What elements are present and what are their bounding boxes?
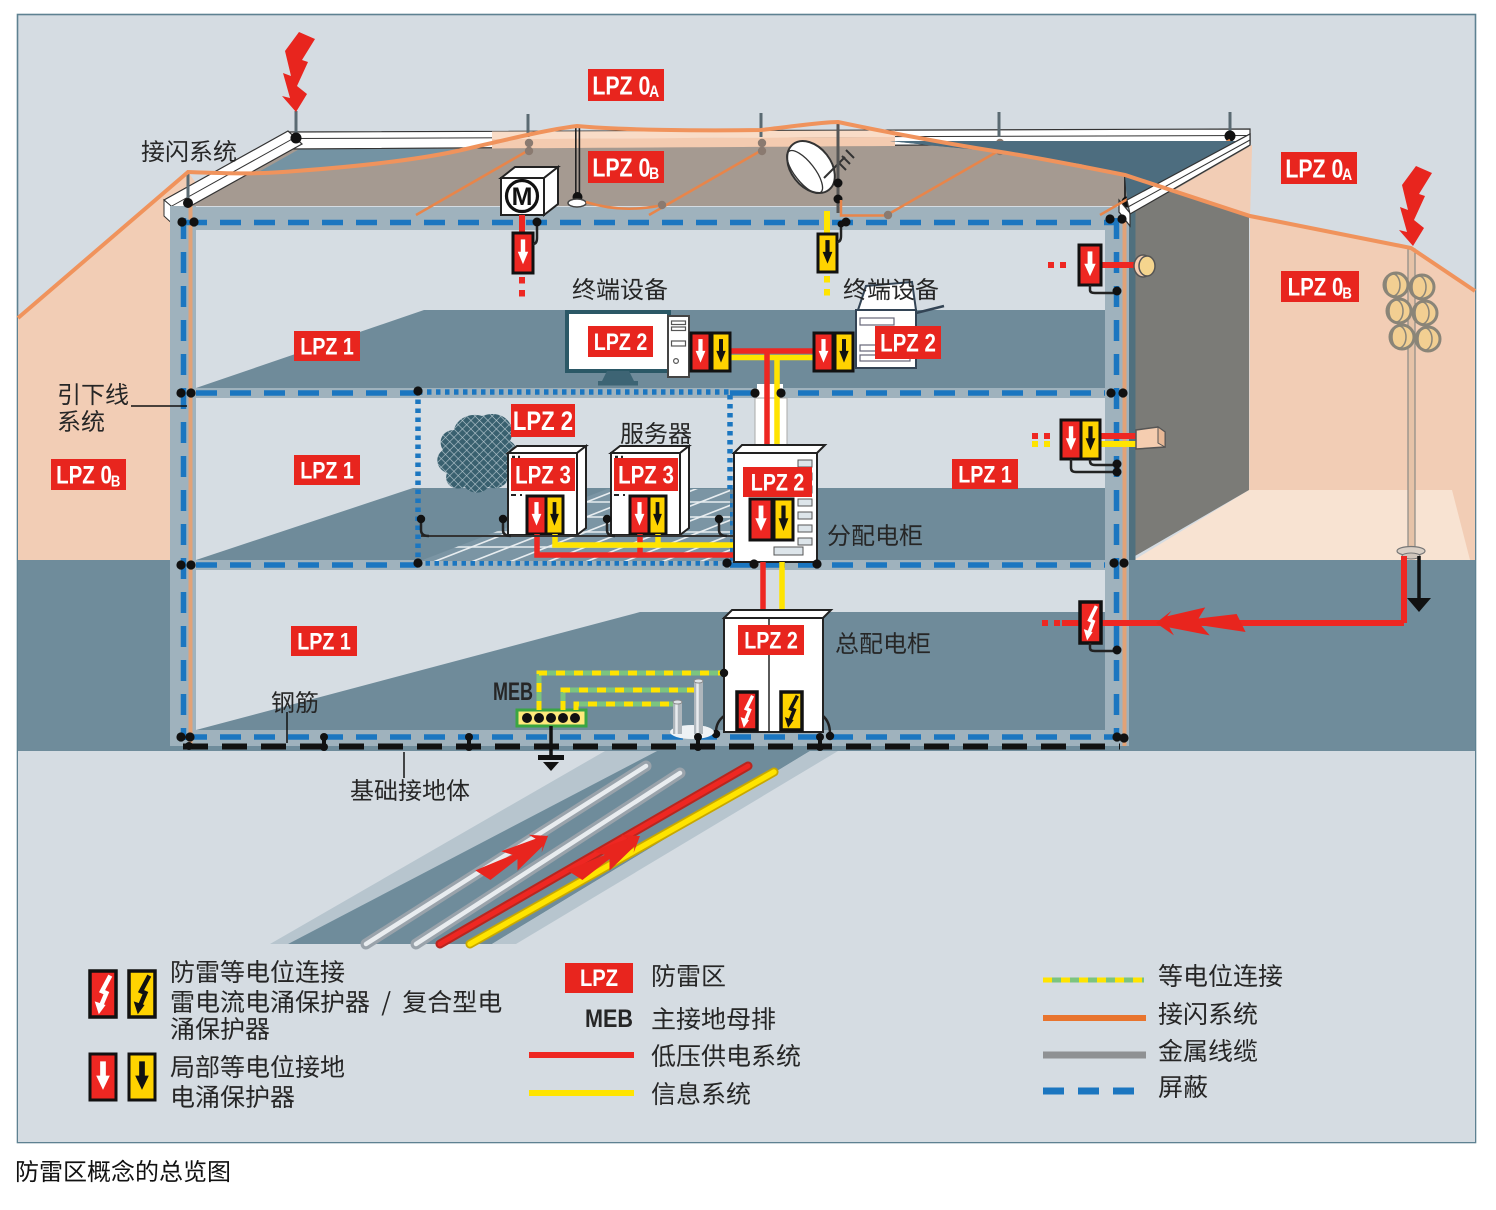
svg-text:LPZ 2: LPZ 2 <box>744 627 798 654</box>
svg-text:LPZ 0: LPZ 0 <box>1288 273 1344 301</box>
svg-text:A: A <box>649 83 659 102</box>
svg-text:MEB: MEB <box>493 678 533 706</box>
svg-text:LPZ 1: LPZ 1 <box>958 461 1012 488</box>
svg-text:LPZ 1: LPZ 1 <box>300 333 354 360</box>
svg-text:LPZ 2: LPZ 2 <box>751 469 805 496</box>
svg-text:LPZ 0: LPZ 0 <box>592 153 650 183</box>
svg-text:A: A <box>1342 166 1352 185</box>
svg-text:LPZ 0: LPZ 0 <box>56 461 112 489</box>
svg-text:MEB: MEB <box>585 1005 633 1033</box>
svg-text:LPZ 0: LPZ 0 <box>592 71 650 101</box>
svg-text:B: B <box>649 165 659 184</box>
svg-text:M: M <box>512 183 533 211</box>
svg-text:B: B <box>1342 285 1351 302</box>
svg-text:LPZ 0: LPZ 0 <box>1285 154 1343 184</box>
svg-text:LPZ 3: LPZ 3 <box>515 461 571 489</box>
svg-text:LPZ 1: LPZ 1 <box>300 457 354 484</box>
svg-text:LPZ 1: LPZ 1 <box>297 628 351 655</box>
svg-text:LPZ 3: LPZ 3 <box>618 461 674 489</box>
svg-text:B: B <box>111 473 120 490</box>
svg-text:LPZ 2: LPZ 2 <box>880 329 936 357</box>
svg-text:LPZ: LPZ <box>580 965 618 992</box>
svg-text:LPZ 2: LPZ 2 <box>513 407 573 437</box>
svg-text:LPZ 2: LPZ 2 <box>594 328 648 355</box>
